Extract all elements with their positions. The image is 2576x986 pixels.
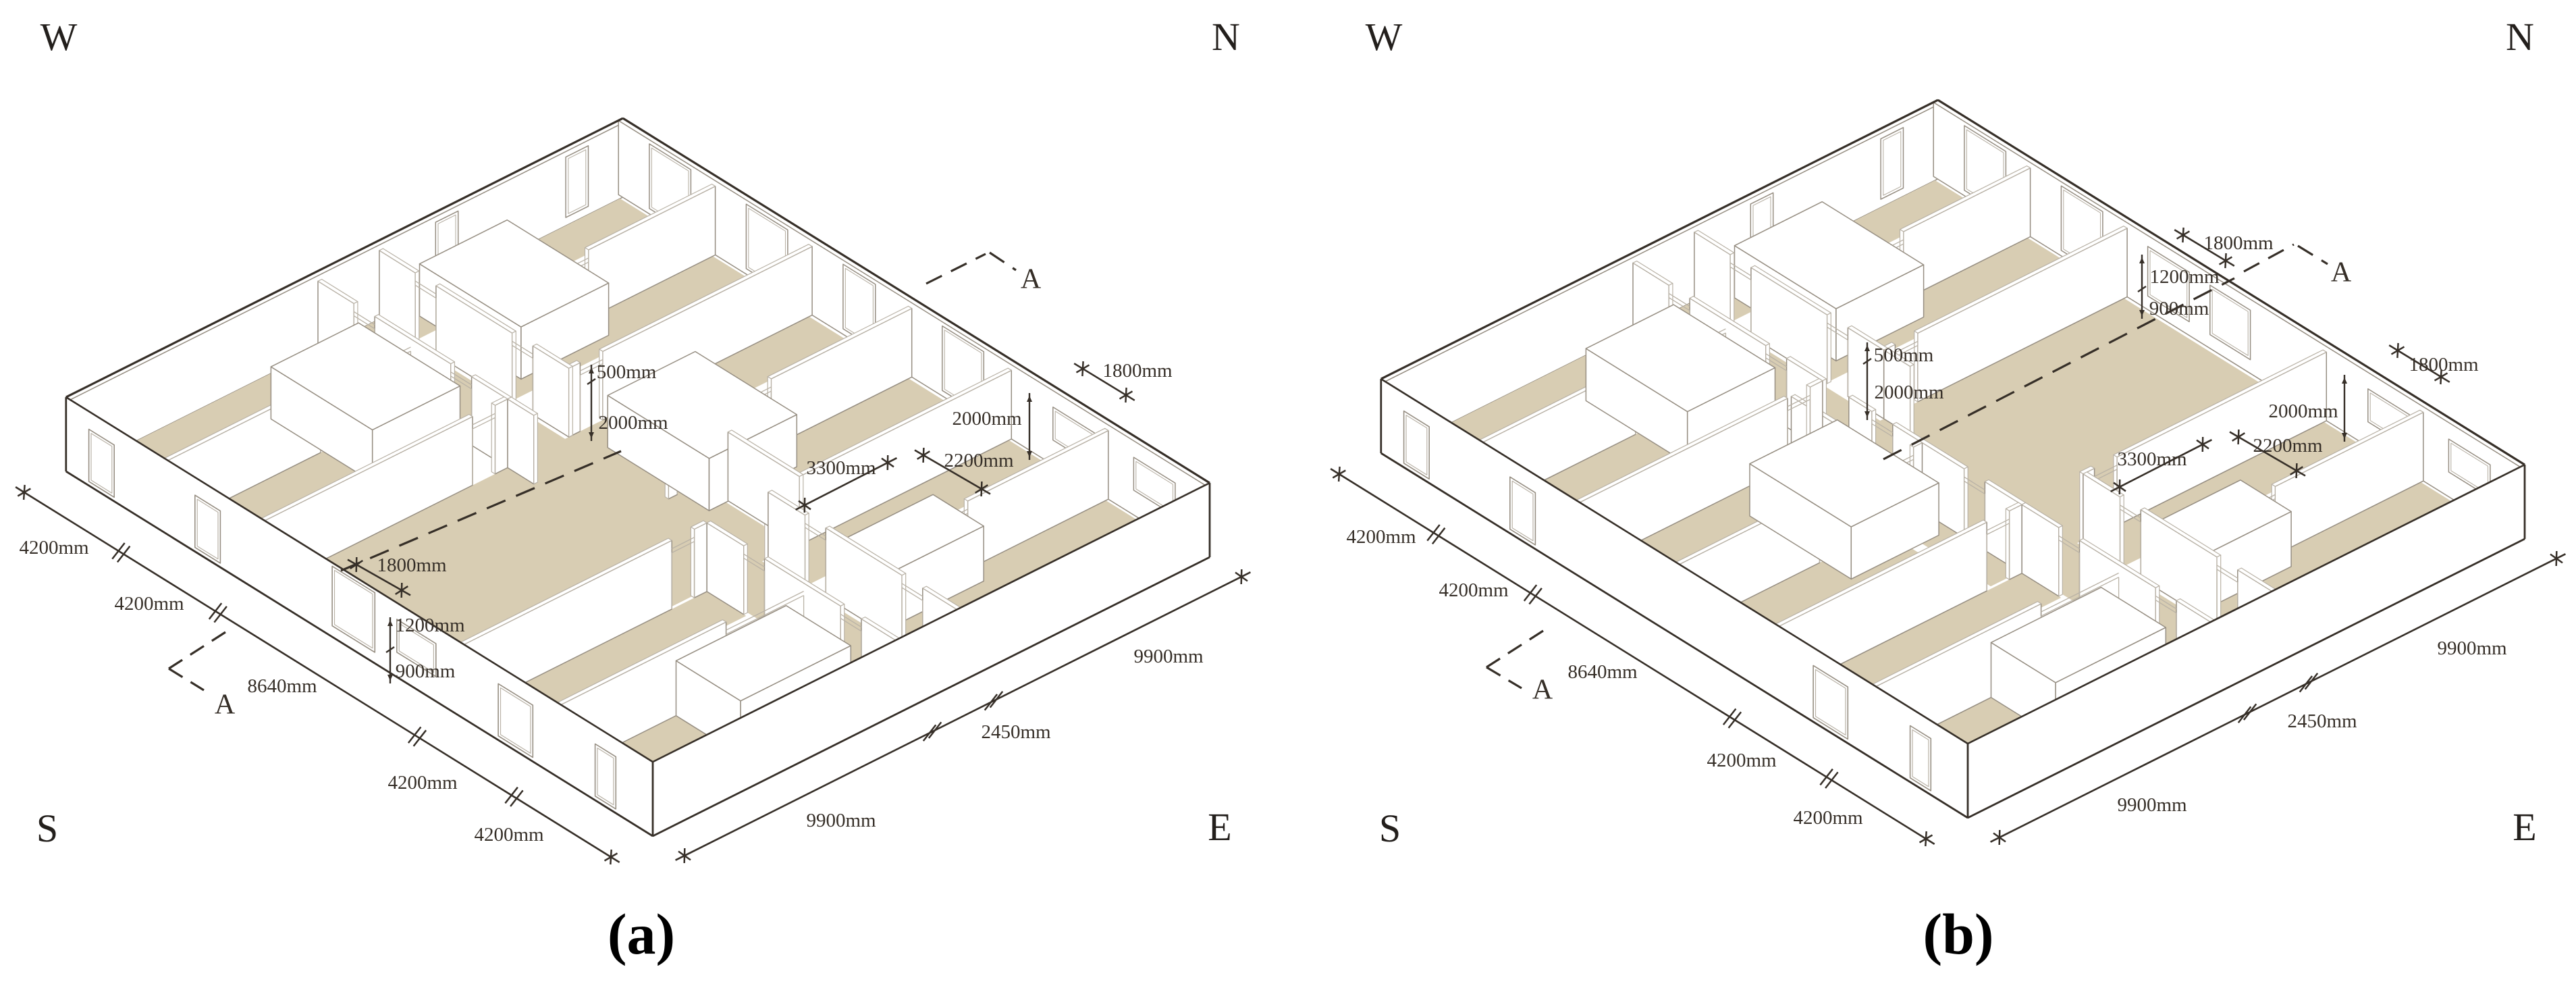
svg-text:4200mm: 4200mm xyxy=(1707,750,1777,771)
svg-text:2450mm: 2450mm xyxy=(981,721,1051,743)
svg-text:2000mm: 2000mm xyxy=(598,412,668,434)
svg-text:3300mm: 3300mm xyxy=(2117,448,2187,470)
svg-text:A: A xyxy=(2331,257,2352,288)
svg-text:2450mm: 2450mm xyxy=(2287,710,2357,732)
svg-text:1200mm: 1200mm xyxy=(2149,266,2220,288)
svg-text:A: A xyxy=(1532,675,1553,706)
svg-text:E: E xyxy=(2513,805,2536,849)
svg-text:9900mm: 9900mm xyxy=(2437,638,2507,659)
svg-text:4200mm: 4200mm xyxy=(1793,807,1863,829)
svg-text:4200mm: 4200mm xyxy=(474,824,544,846)
svg-text:900mm: 900mm xyxy=(396,660,456,682)
svg-text:N: N xyxy=(1212,15,1240,59)
svg-text:500mm: 500mm xyxy=(597,361,657,383)
svg-text:1200mm: 1200mm xyxy=(395,615,465,636)
svg-text:N: N xyxy=(2506,15,2534,59)
svg-text:4200mm: 4200mm xyxy=(114,593,184,615)
svg-text:8640mm: 8640mm xyxy=(247,675,317,697)
svg-text:2000mm: 2000mm xyxy=(1874,382,1944,403)
svg-text:4200mm: 4200mm xyxy=(1439,579,1509,601)
svg-text:900mm: 900mm xyxy=(2149,298,2209,319)
svg-text:9900mm: 9900mm xyxy=(806,810,876,831)
svg-text:8640mm: 8640mm xyxy=(1567,661,1638,683)
svg-text:2000mm: 2000mm xyxy=(952,408,1022,430)
svg-text:2200mm: 2200mm xyxy=(2253,435,2323,457)
svg-text:A: A xyxy=(215,690,236,721)
svg-text:9900mm: 9900mm xyxy=(2117,794,2187,816)
svg-text:3300mm: 3300mm xyxy=(806,457,876,479)
svg-text:(a): (a) xyxy=(608,902,675,966)
svg-text:4200mm: 4200mm xyxy=(1346,526,1416,548)
svg-text:A: A xyxy=(1021,264,1042,295)
svg-text:1800mm: 1800mm xyxy=(1102,360,1173,382)
svg-text:W: W xyxy=(41,15,78,59)
svg-text:2200mm: 2200mm xyxy=(944,450,1014,471)
svg-text:1800mm: 1800mm xyxy=(377,554,447,576)
svg-text:500mm: 500mm xyxy=(1874,344,1934,366)
svg-text:W: W xyxy=(1366,15,1403,59)
svg-text:2000mm: 2000mm xyxy=(2268,400,2338,422)
svg-text:9900mm: 9900mm xyxy=(1133,646,1204,667)
svg-text:S: S xyxy=(36,806,58,850)
svg-text:E: E xyxy=(1208,805,1231,849)
svg-text:1800mm: 1800mm xyxy=(2409,354,2479,375)
svg-text:4200mm: 4200mm xyxy=(19,537,89,559)
svg-text:1800mm: 1800mm xyxy=(2203,232,2274,254)
svg-text:(b): (b) xyxy=(1923,902,1993,966)
svg-text:4200mm: 4200mm xyxy=(387,772,458,794)
svg-text:S: S xyxy=(1379,806,1401,850)
